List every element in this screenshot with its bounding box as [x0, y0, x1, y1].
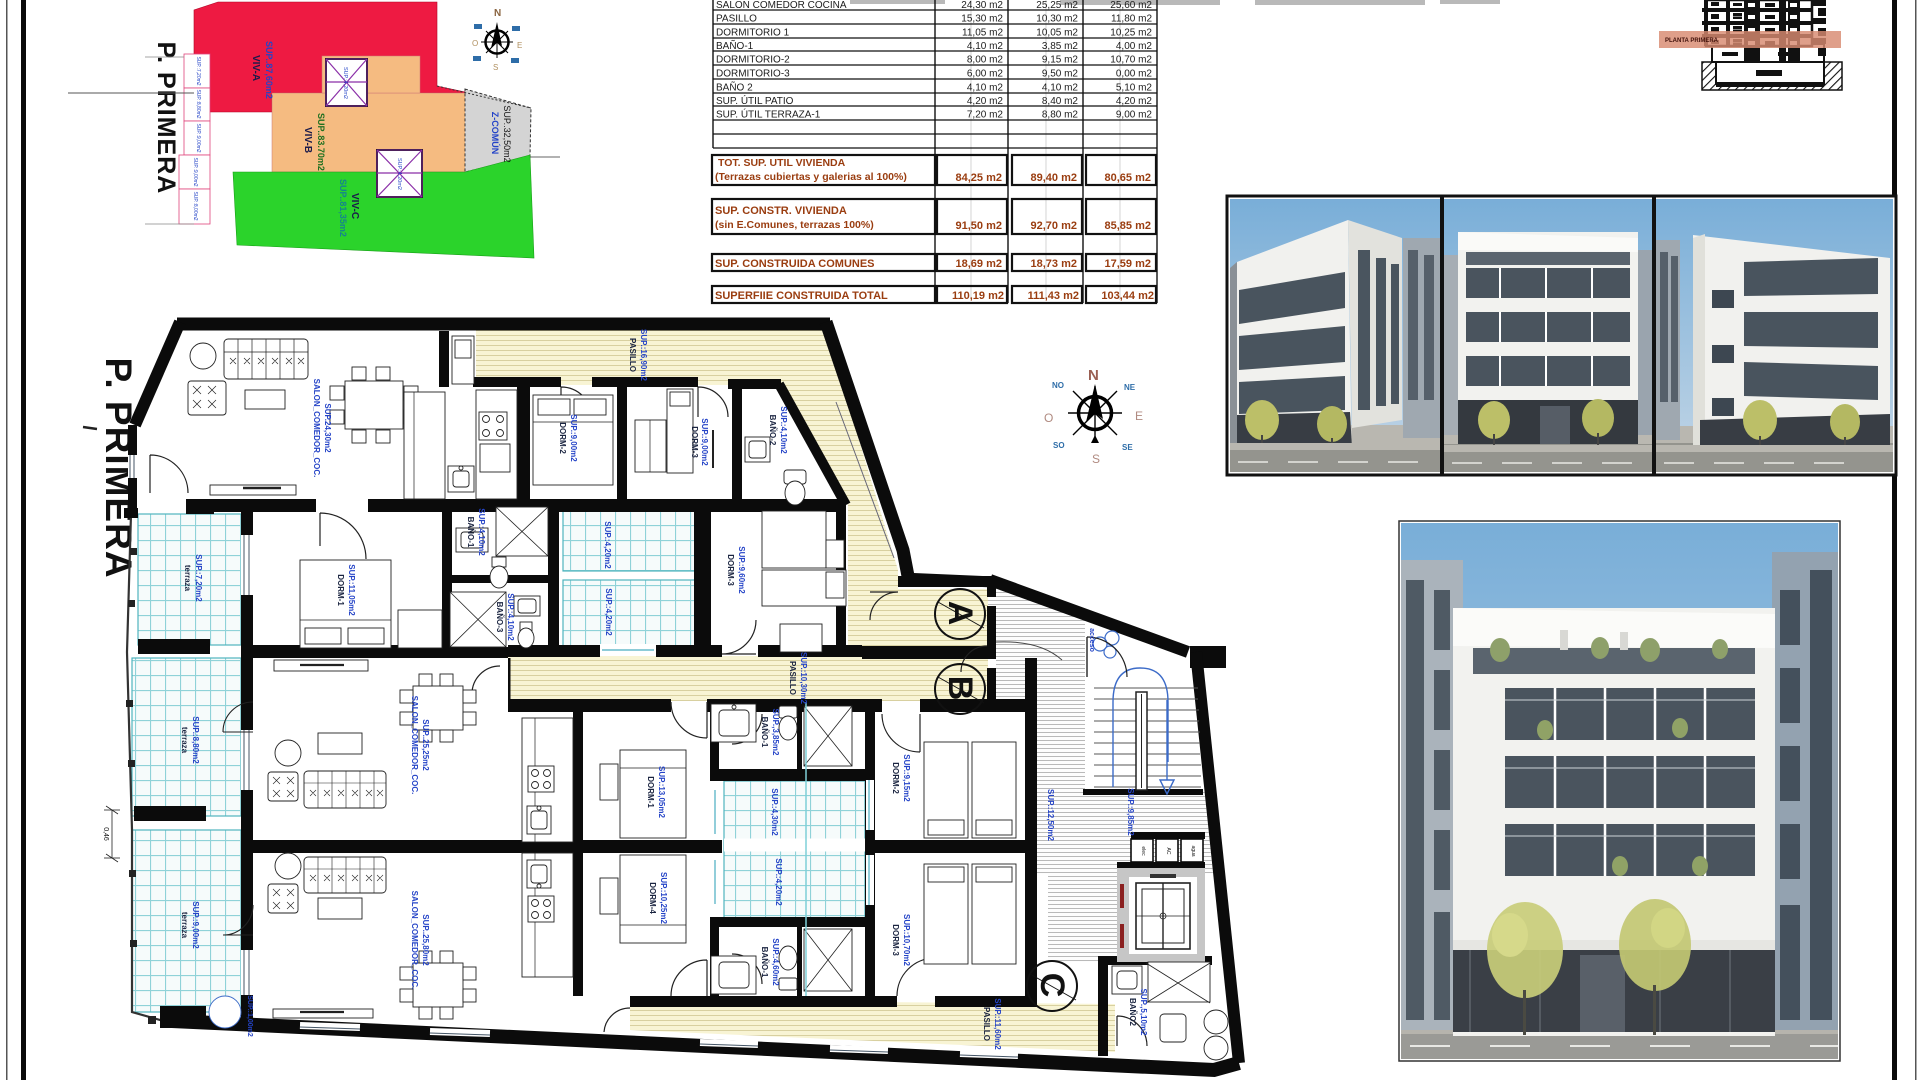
svg-text:SUP.:9,85m2: SUP.:9,85m2 [1126, 788, 1135, 836]
svg-text:O: O [472, 39, 478, 48]
svg-text:SUP.:4,20m2: SUP.:4,20m2 [604, 588, 613, 636]
svg-text:0,46: 0,46 [102, 827, 109, 841]
svg-text:SUP.:4,20m2: SUP.:4,20m2 [774, 858, 783, 906]
svg-text:C: C [1033, 973, 1071, 998]
svg-text:SUP.:9,15m2: SUP.:9,15m2 [902, 754, 911, 802]
svg-text:VIV-A: VIV-A [250, 55, 261, 81]
svg-text:SUP.:4,60m2: SUP.:4,60m2 [771, 938, 780, 986]
svg-text:103,44 m2: 103,44 m2 [1101, 290, 1154, 302]
svg-text:DORM-4: DORM-4 [648, 882, 657, 914]
svg-text:SUP.:8,80m2: SUP.:8,80m2 [195, 89, 201, 118]
svg-text:SUP.:10,70m2: SUP.:10,70m2 [902, 914, 911, 966]
svg-text:BAÑO-1: BAÑO-1 [466, 517, 475, 548]
svg-text:E: E [517, 41, 522, 50]
svg-text:110,19 m2: 110,19 m2 [952, 290, 1004, 302]
svg-text:(sin E.Comunes, terrazas 100%): (sin E.Comunes, terrazas 100%) [715, 219, 874, 231]
svg-text:E: E [1135, 409, 1143, 423]
svg-text:AC: AC [1165, 848, 1171, 855]
svg-text:8,40 m2: 8,40 m2 [1042, 96, 1079, 107]
svg-text:SUP. ÚTIL PATIO: SUP. ÚTIL PATIO [716, 94, 794, 107]
svg-text:11,80 m2: 11,80 m2 [1111, 14, 1152, 25]
svg-text:NO: NO [1052, 381, 1064, 390]
svg-text:BAÑO-1: BAÑO-1 [716, 39, 754, 52]
svg-text:SUP..25,25m2: SUP..25,25m2 [421, 719, 430, 771]
svg-text:8,80 m2: 8,80 m2 [1042, 110, 1079, 121]
svg-text:SUP.:12,50m2: SUP.:12,50m2 [1046, 789, 1055, 841]
svg-text:SUP.:7,20m2: SUP.:7,20m2 [195, 56, 201, 85]
svg-text:SUP.:4,20m2: SUP.:4,20m2 [396, 158, 402, 190]
svg-text:SUP.:11,60m2: SUP.:11,60m2 [993, 998, 1002, 1050]
svg-text:VIV-C: VIV-C [349, 193, 360, 219]
svg-text:10,30 m2: 10,30 m2 [1036, 14, 1078, 25]
svg-text:111,43 m2: 111,43 m2 [1028, 290, 1079, 302]
svg-text:A: A [941, 601, 979, 626]
svg-text:P. PRIMERA: P. PRIMERA [152, 42, 180, 195]
svg-text:DORMITORIO-3: DORMITORIO-3 [716, 69, 790, 80]
svg-text:SUP..81,35m2: SUP..81,35m2 [338, 179, 348, 237]
svg-text:SUP.:9,00m2: SUP.:9,00m2 [191, 901, 200, 949]
svg-text:SUP.:4,20m2: SUP.:4,20m2 [342, 67, 348, 99]
svg-text:DORM-3: DORM-3 [891, 924, 900, 956]
svg-text:5,10 m2: 5,10 m2 [1116, 83, 1153, 94]
svg-text:O: O [1044, 411, 1053, 425]
svg-text:BAÑO 2: BAÑO 2 [716, 81, 753, 94]
svg-text:PASILLO: PASILLO [628, 338, 637, 372]
svg-text:84,25 m2: 84,25 m2 [956, 172, 1002, 184]
svg-text:PASILLO: PASILLO [716, 14, 757, 25]
svg-text:DORM-1: DORM-1 [646, 776, 655, 808]
svg-text:elec: elec [1140, 846, 1146, 856]
svg-text:terraza: terraza [180, 912, 189, 939]
svg-text:SUP. CONSTRUIDA COMUNES: SUP. CONSTRUIDA COMUNES [715, 258, 875, 270]
svg-text:SUP.:4,30m2: SUP.:4,30m2 [770, 788, 779, 836]
svg-text:SUP.:4,10m2: SUP.:4,10m2 [477, 508, 486, 556]
svg-text:18,69 m2: 18,69 m2 [956, 258, 1002, 270]
svg-text:11,05 m2: 11,05 m2 [962, 28, 1003, 39]
svg-text:SALON COMEDOR COCINA: SALON COMEDOR COCINA [716, 0, 847, 11]
svg-text:SUP.:9,60m2: SUP.:9,60m2 [737, 546, 746, 594]
svg-text:VIV-B: VIV-B [302, 127, 313, 153]
svg-text:SUP.:4,10m2: SUP.:4,10m2 [779, 406, 788, 454]
svg-text:terraza: terraza [180, 727, 189, 754]
svg-text:4,10 m2: 4,10 m2 [967, 83, 1004, 94]
svg-text:25,25 m2: 25,25 m2 [1036, 0, 1078, 11]
svg-text:25,60 m2: 25,60 m2 [1110, 0, 1152, 11]
svg-text:92,70 m2: 92,70 m2 [1031, 220, 1077, 232]
svg-text:10,70 m2: 10,70 m2 [1110, 55, 1152, 66]
svg-text:SUP..32,50m2: SUP..32,50m2 [502, 105, 512, 162]
svg-text:DORM-2: DORM-2 [891, 762, 900, 794]
svg-text:9,00 m2: 9,00 m2 [1116, 110, 1153, 121]
svg-text:SUP.:11,05m2: SUP.:11,05m2 [347, 564, 356, 616]
svg-text:DORM-2: DORM-2 [558, 422, 567, 454]
svg-text:S: S [1092, 452, 1100, 466]
svg-text:6,00 m2: 6,00 m2 [967, 69, 1004, 80]
svg-text:15,30 m2: 15,30 m2 [961, 14, 1003, 25]
svg-text:SALON_COMEDOR_COC.: SALON_COMEDOR_COC. [410, 696, 419, 795]
svg-text:9,15 m2: 9,15 m2 [1042, 55, 1079, 66]
svg-text:4,20 m2: 4,20 m2 [967, 96, 1004, 107]
svg-text:4,10 m2: 4,10 m2 [1042, 83, 1079, 94]
svg-text:acceso: acceso [1088, 628, 1095, 652]
svg-text:8,00 m2: 8,00 m2 [967, 55, 1004, 66]
svg-text:10,05 m2: 10,05 m2 [1036, 28, 1078, 39]
svg-text:SUP. ÚTIL TERRAZA-1: SUP. ÚTIL TERRAZA-1 [716, 108, 821, 121]
svg-text:SUP.:9,00m2: SUP.:9,00m2 [195, 123, 201, 152]
svg-text:PLANTA PRIMERA: PLANTA PRIMERA [1665, 38, 1719, 44]
svg-text:SUP. CONSTR. VIVIENDA: SUP. CONSTR. VIVIENDA [715, 205, 847, 217]
svg-text:89,40 m2: 89,40 m2 [1031, 172, 1077, 184]
svg-text:SUP.:9,00m2: SUP.:9,00m2 [569, 414, 578, 462]
svg-text:SUP.,5,10m2: SUP.,5,10m2 [1139, 989, 1148, 1037]
svg-text:SUP.:10,30m2: SUP.:10,30m2 [799, 652, 808, 704]
svg-text:SUP.:7,20m2: SUP.:7,20m2 [194, 554, 203, 602]
svg-text:SUPERFIIE CONSTRUIDA TOTAL: SUPERFIIE CONSTRUIDA TOTAL [715, 290, 888, 302]
svg-text:BAÑO-1: BAÑO-1 [760, 717, 769, 748]
svg-text:PASILLO: PASILLO [788, 661, 797, 695]
svg-text:SUP.:16,90m2: SUP.:16,90m2 [639, 329, 648, 381]
svg-text:SUP..87,60m2: SUP..87,60m2 [264, 41, 274, 99]
svg-text:SUP.:4,10m2: SUP.:4,10m2 [506, 593, 515, 641]
svg-text:DORMITORIO-2: DORMITORIO-2 [716, 55, 790, 66]
svg-text:SUP.:10,25m2: SUP.:10,25m2 [659, 872, 668, 924]
svg-text:18,73 m2: 18,73 m2 [1031, 258, 1077, 270]
svg-text:SUP.24,30m2: SUP.24,30m2 [323, 403, 332, 453]
svg-text:3,85 m2: 3,85 m2 [1042, 41, 1079, 52]
svg-text:SUP..83.70m2: SUP..83.70m2 [316, 113, 326, 171]
svg-text:80,65 m2: 80,65 m2 [1105, 172, 1151, 184]
svg-text:SUP.:8,00m2: SUP.:8,00m2 [192, 191, 198, 220]
svg-text:SUP.:9,00m2: SUP.:9,00m2 [700, 418, 709, 466]
svg-text:BAÑO-2: BAÑO-2 [768, 415, 777, 446]
svg-text:7,20 m2: 7,20 m2 [967, 110, 1004, 121]
svg-text:SUP.:8,80m2: SUP.:8,80m2 [191, 716, 200, 764]
svg-text:SALON_COMEDOR_COC.: SALON_COMEDOR_COC. [312, 379, 321, 478]
svg-text:N: N [1088, 367, 1099, 384]
svg-text:SUP.:9,00m2: SUP.:9,00m2 [192, 157, 198, 186]
svg-text:S: S [493, 63, 498, 72]
svg-text:SO: SO [1053, 441, 1065, 450]
svg-text:BAÑO-3: BAÑO-3 [495, 602, 504, 633]
svg-text:BAÑO-1: BAÑO-1 [760, 947, 769, 978]
svg-text:SUP..25,80m2: SUP..25,80m2 [421, 914, 430, 966]
svg-text:DORM-1: DORM-1 [336, 574, 345, 606]
svg-text:4,20 m2: 4,20 m2 [1116, 96, 1153, 107]
svg-text:DORM-3: DORM-3 [726, 554, 735, 586]
svg-text:4,10 m2: 4,10 m2 [967, 41, 1004, 52]
svg-text:SALON_COMEDOR_COC.: SALON_COMEDOR_COC. [410, 891, 419, 990]
svg-text:SUP.:4,20m2: SUP.:4,20m2 [603, 521, 612, 569]
svg-text:10,25 m2: 10,25 m2 [1110, 28, 1152, 39]
svg-text:SUP.,3,85m2: SUP.,3,85m2 [771, 709, 780, 757]
svg-text:0,00 m2: 0,00 m2 [1116, 69, 1153, 80]
svg-text:agua: agua [1190, 845, 1196, 856]
svg-text:(Terrazas cubiertas y galerias: (Terrazas cubiertas y galerias al 100%) [715, 171, 907, 183]
svg-text:Z-COMÚN: Z-COMÚN [490, 112, 501, 155]
svg-text:TOT. SUP. UTIL VIVIENDA: TOT. SUP. UTIL VIVIENDA [718, 157, 846, 169]
svg-text:terraza: terraza [183, 565, 192, 592]
svg-text:BAÑO2: BAÑO2 [1128, 998, 1137, 1027]
svg-text:NE: NE [1124, 383, 1136, 392]
svg-text:SUP.:13,05m2: SUP.:13,05m2 [657, 766, 666, 818]
svg-text:17,59 m2: 17,59 m2 [1105, 258, 1151, 270]
svg-text:B: B [941, 676, 979, 701]
svg-text:24,30 m2: 24,30 m2 [961, 0, 1003, 11]
svg-text:85,85 m2: 85,85 m2 [1105, 220, 1151, 232]
svg-text:N: N [494, 8, 501, 19]
svg-text:SE: SE [1122, 443, 1133, 452]
svg-text:DORM-3: DORM-3 [690, 426, 699, 458]
svg-text:91,50 m2: 91,50 m2 [956, 220, 1002, 232]
svg-text:4,00 m2: 4,00 m2 [1116, 41, 1153, 52]
svg-text:SUP.:1,00m2: SUP.:1,00m2 [246, 995, 253, 1037]
svg-text:9,50 m2: 9,50 m2 [1042, 69, 1079, 80]
svg-text:DORMITORIO 1: DORMITORIO 1 [716, 28, 790, 39]
svg-text:PASILLO: PASILLO [982, 1007, 991, 1041]
